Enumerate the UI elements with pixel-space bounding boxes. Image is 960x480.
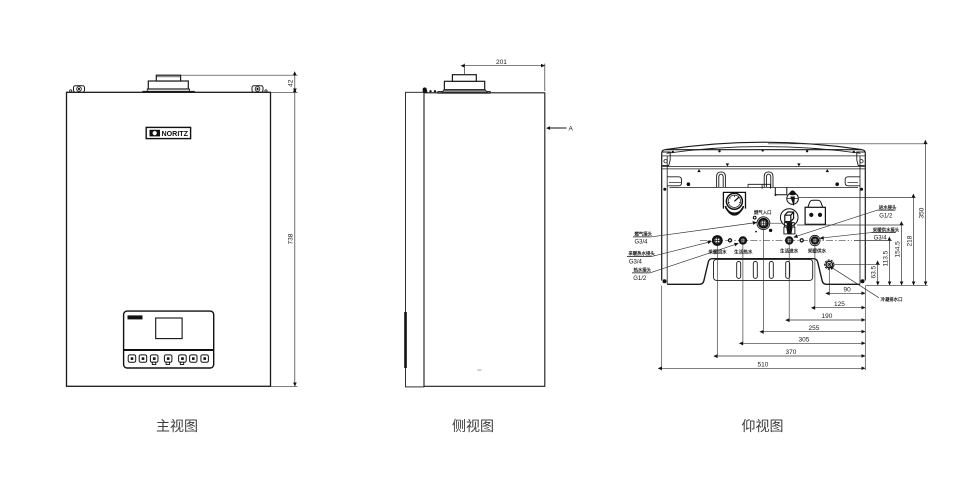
svg-text:190: 190 <box>822 313 833 320</box>
svg-text:63.5: 63.5 <box>871 265 878 278</box>
svg-text:350: 350 <box>918 207 925 218</box>
svg-text:仰视图: 仰视图 <box>742 418 784 434</box>
svg-text:冷凝排水口: 冷凝排水口 <box>881 296 903 303</box>
svg-text:G3/4: G3/4 <box>874 236 888 242</box>
svg-text:燃气接头: 燃气接头 <box>635 230 653 237</box>
svg-text:370: 370 <box>786 349 797 356</box>
svg-text:采暖热水接头: 采暖热水接头 <box>627 250 655 257</box>
svg-text:218: 218 <box>906 235 913 246</box>
svg-text:90: 90 <box>844 286 852 293</box>
svg-text:201: 201 <box>496 59 507 66</box>
svg-text:燃气入口: 燃气入口 <box>754 209 772 216</box>
svg-text:255: 255 <box>809 325 820 332</box>
svg-text:125: 125 <box>834 301 845 308</box>
svg-text:G1/2: G1/2 <box>633 276 647 282</box>
svg-text:42: 42 <box>288 79 295 87</box>
svg-text:510: 510 <box>758 361 769 368</box>
svg-text:侧视图: 侧视图 <box>452 418 494 434</box>
svg-text:305: 305 <box>799 336 810 343</box>
svg-text:NORITZ: NORITZ <box>162 129 189 138</box>
svg-text:生活热水: 生活热水 <box>734 249 753 256</box>
svg-text:113.5: 113.5 <box>882 250 889 266</box>
svg-text:G1/2: G1/2 <box>879 214 893 220</box>
svg-text:主视图: 主视图 <box>156 418 198 434</box>
svg-text:采暖供水: 采暖供水 <box>807 248 827 255</box>
svg-text:G3/4: G3/4 <box>635 240 649 246</box>
svg-text:738: 738 <box>288 233 295 244</box>
svg-text:154.5: 154.5 <box>894 241 901 258</box>
svg-text:A: A <box>569 126 574 133</box>
svg-text:G3/4: G3/4 <box>629 259 643 265</box>
